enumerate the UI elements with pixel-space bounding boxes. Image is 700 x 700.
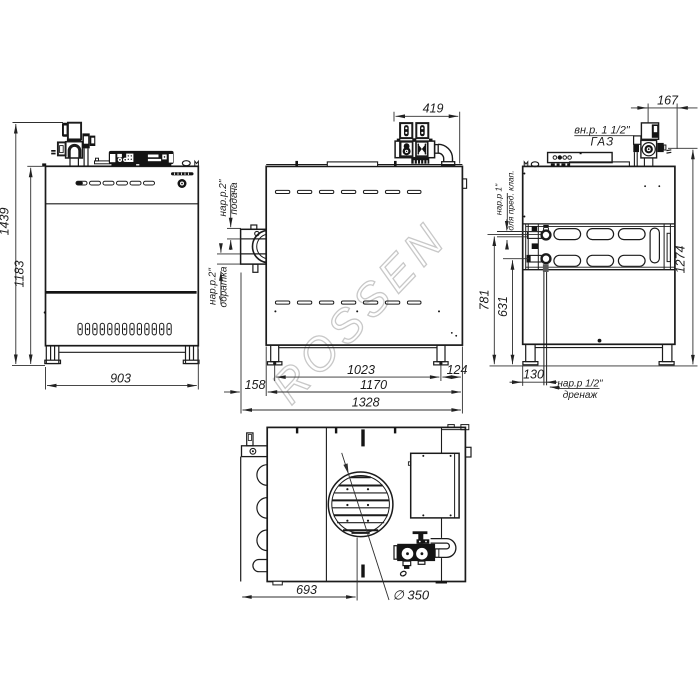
svg-text:158: 158 [245, 378, 266, 392]
svg-text:124: 124 [447, 363, 468, 377]
svg-text:1274: 1274 [673, 246, 687, 274]
svg-text:ROSSEN: ROSSEN [261, 211, 458, 413]
svg-text:1439: 1439 [0, 208, 12, 236]
svg-text:обратка: обратка [218, 266, 230, 307]
svg-text:нар.р.2": нар.р.2" [218, 179, 229, 216]
svg-text:вн.р. 1 1/2": вн.р. 1 1/2" [574, 124, 631, 136]
svg-text:903: 903 [110, 372, 131, 386]
svg-text:нар.р.2": нар.р.2" [208, 268, 219, 305]
svg-text:631: 631 [496, 296, 510, 317]
svg-text:419: 419 [423, 101, 444, 115]
svg-text:1023: 1023 [347, 363, 375, 377]
svg-text:∅ 350: ∅ 350 [393, 588, 430, 603]
svg-text:дренаж: дренаж [563, 390, 599, 401]
svg-text:693: 693 [296, 583, 317, 597]
svg-text:нар.р 1/2": нар.р 1/2" [557, 378, 603, 389]
svg-text:1183: 1183 [13, 261, 27, 288]
svg-text:781: 781 [478, 290, 492, 311]
svg-text:1328: 1328 [352, 396, 380, 410]
svg-text:ГАЗ: ГАЗ [591, 137, 615, 149]
svg-text:1170: 1170 [360, 378, 387, 392]
svg-text:нар.р 1": нар.р 1" [494, 183, 504, 215]
svg-text:130: 130 [523, 367, 544, 381]
svg-text:167: 167 [657, 93, 679, 107]
